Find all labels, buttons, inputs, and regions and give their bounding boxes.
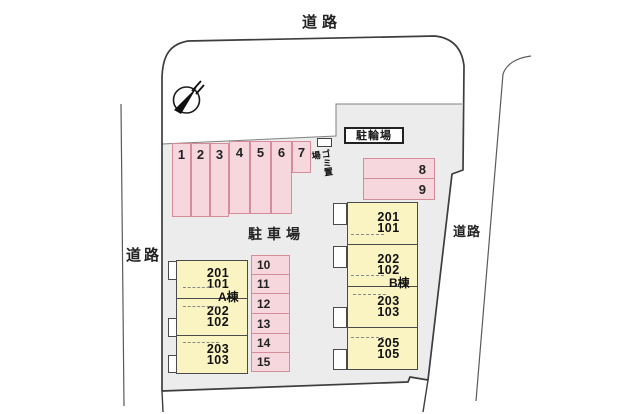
parking-stall-6: 6 <box>271 141 292 214</box>
building-b-stair-line <box>351 234 384 235</box>
building-a-stair-line <box>183 287 219 288</box>
boundary-tail-left <box>162 391 163 412</box>
building-a-porch <box>168 318 177 337</box>
road-edge-left <box>121 104 124 406</box>
stall-number: 10 <box>257 258 270 272</box>
stall-number: 13 <box>257 317 270 331</box>
garbage-structure <box>317 138 332 147</box>
road-label-left: 道路 <box>126 244 162 265</box>
parking-stall-2: 2 <box>191 143 210 217</box>
site-plan: 道路 道路 道路 駐車場 駐輪場 ゴミ置場 1 2 3 4 5 6 7 8 9 … <box>0 0 640 414</box>
unit-number-lower: 103 <box>377 307 399 318</box>
garbage-area-label: ゴミ置場 <box>310 149 334 181</box>
parking-stall-10: 10 <box>251 255 290 275</box>
stall-number: 14 <box>257 336 270 350</box>
stall-number: 9 <box>419 182 426 197</box>
building-a-porch <box>168 355 177 373</box>
parking-stall-7: 7 <box>292 141 311 173</box>
parking-stall-11: 11 <box>251 274 290 294</box>
building-b-stair-line <box>351 337 384 338</box>
building-b-porch <box>333 349 347 370</box>
parking-stall-1: 1 <box>172 143 191 217</box>
building-b-unit-205-105: 205 105 <box>348 327 417 369</box>
building-b-unit-201-101: 201 101 <box>348 203 417 244</box>
building-b-unit-203-103: 203 103 <box>348 286 417 328</box>
parking-stall-14: 14 <box>251 333 290 353</box>
building-b-stair-line <box>351 275 384 276</box>
stall-number: 1 <box>178 147 185 162</box>
building-a-stair-line <box>183 306 219 307</box>
stall-number: 7 <box>298 145 305 160</box>
building-b-porch <box>333 203 347 225</box>
stall-number: 8 <box>419 162 426 177</box>
building-b-label: B棟 <box>389 274 410 291</box>
stall-number: 15 <box>257 355 270 369</box>
building-a-unit-203-103: 203 103 <box>177 335 247 373</box>
parking-stall-4: 4 <box>229 141 250 214</box>
unit-number-lower: 103 <box>207 355 229 366</box>
stall-number: 3 <box>216 147 223 162</box>
site-plan-drawing <box>0 0 640 414</box>
unit-number-lower: 101 <box>377 223 399 234</box>
parking-stall-12: 12 <box>251 293 290 314</box>
building-b-stair-line <box>353 294 386 295</box>
building-a-label: A棟 <box>218 288 239 305</box>
road-edge-right <box>476 56 531 401</box>
parking-stall-13: 13 <box>251 313 290 334</box>
north-compass-icon <box>174 81 205 114</box>
building-a: 201 101 202 102 203 103 <box>176 260 248 374</box>
parking-stall-15: 15 <box>251 352 290 372</box>
stall-number: 11 <box>257 277 270 291</box>
stall-number: 12 <box>257 297 270 311</box>
unit-number-lower: 102 <box>207 317 229 328</box>
boundary-tail-right <box>423 380 428 412</box>
parking-lot-label: 駐車場 <box>248 224 305 244</box>
stall-number: 4 <box>236 145 243 160</box>
parking-stall-8: 8 <box>363 158 435 179</box>
stall-number: 6 <box>278 145 285 160</box>
stall-number: 5 <box>257 145 264 160</box>
parking-stall-3: 3 <box>210 143 229 217</box>
building-a-porch <box>168 261 177 280</box>
road-label-right: 道路 <box>453 221 481 240</box>
road-label-top: 道路 <box>302 11 342 32</box>
parking-stall-5: 5 <box>250 141 271 214</box>
unit-number-lower: 105 <box>377 349 399 360</box>
parking-stall-9: 9 <box>363 178 435 200</box>
bicycle-parking-label: 駐輪場 <box>344 127 404 144</box>
building-a-stair-line <box>183 342 219 343</box>
stall-number: 2 <box>197 147 204 162</box>
building-b-porch <box>333 307 347 328</box>
building-b-porch <box>333 246 347 268</box>
